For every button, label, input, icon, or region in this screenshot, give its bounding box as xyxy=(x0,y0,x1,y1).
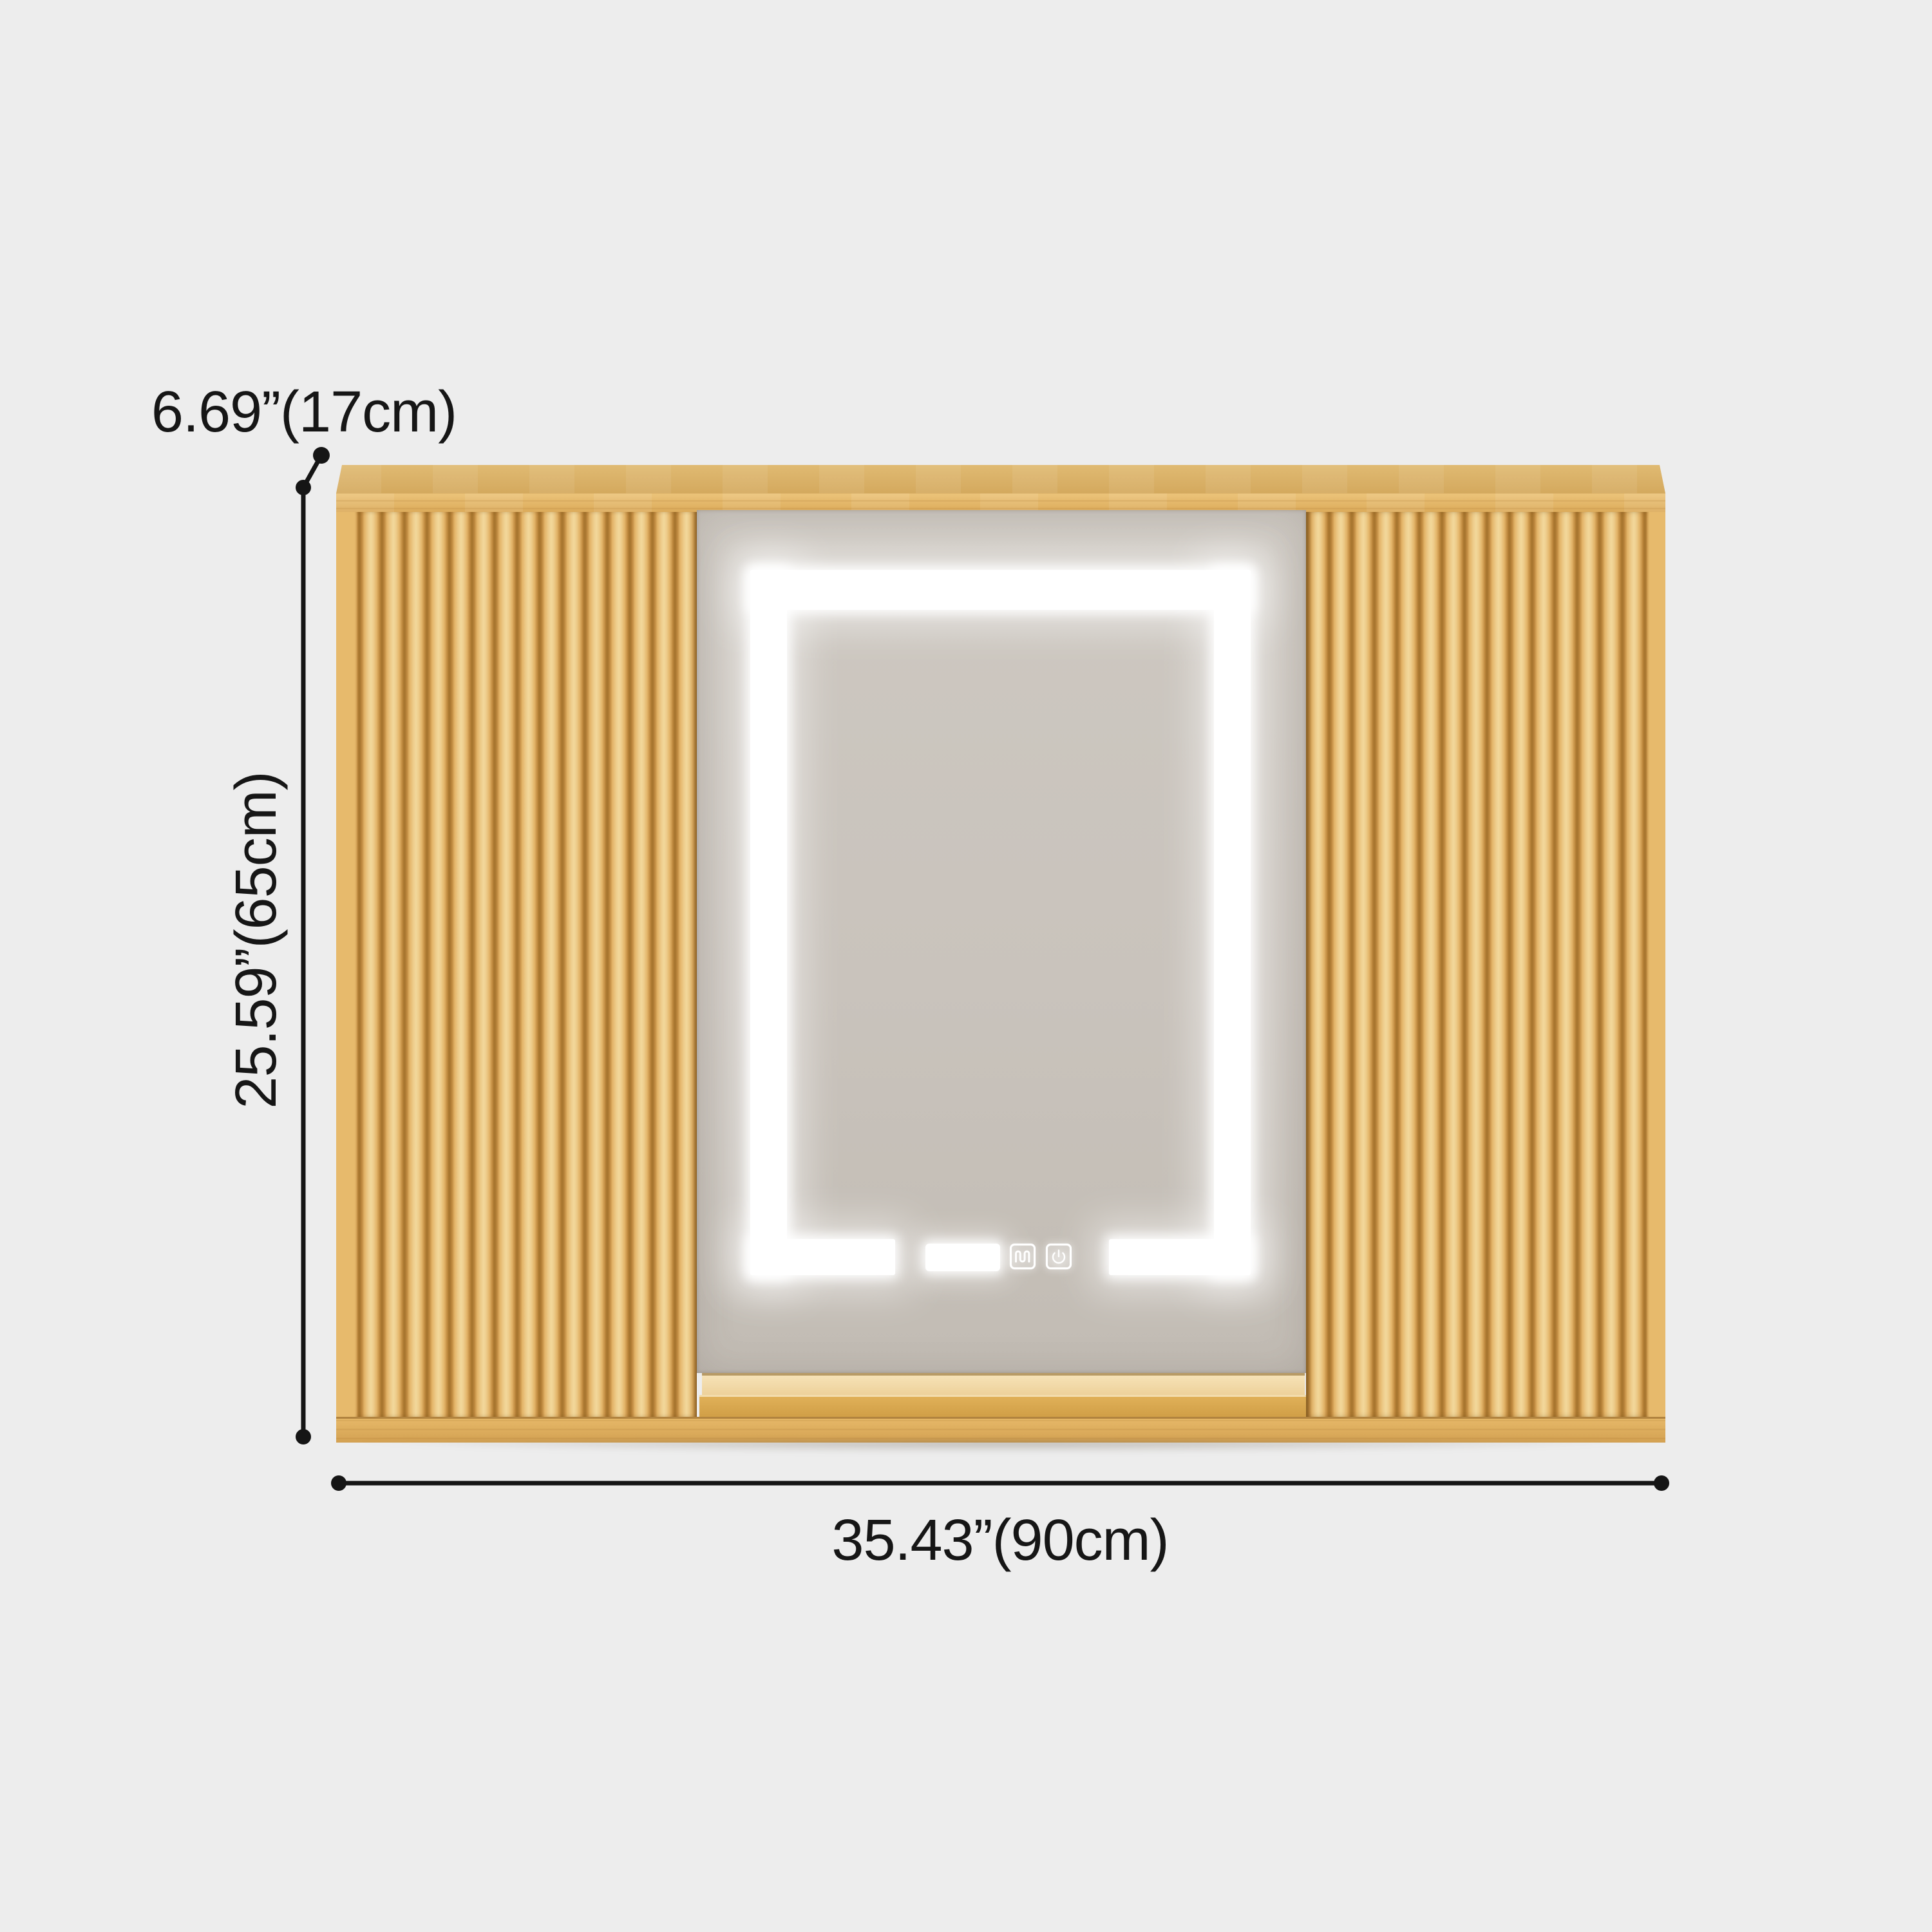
depth-leader-dot xyxy=(313,447,330,464)
defog-button xyxy=(1009,1243,1036,1270)
cabinet-drop-shadow xyxy=(343,1441,1659,1454)
width-line-right-dot xyxy=(1654,1475,1669,1491)
height-dimension-label: 25.59”(65cm) xyxy=(227,772,285,1108)
open-shelf-floor xyxy=(699,1395,1307,1419)
width-line-left-dot xyxy=(331,1475,346,1491)
led-strip-top xyxy=(750,570,1251,610)
depth-dimension-label: 6.69”(17cm) xyxy=(151,383,457,441)
left-fluted-door xyxy=(336,512,697,1417)
led-strip-bottom-left xyxy=(750,1239,895,1275)
width-dimension-label: 35.43”(90cm) xyxy=(831,1511,1168,1569)
led-display-window xyxy=(925,1244,1000,1271)
led-strip-right xyxy=(1214,570,1251,1275)
height-line-bottom-dot xyxy=(296,1429,311,1444)
led-strip-left xyxy=(750,570,787,1275)
open-shelf-back-panel xyxy=(702,1373,1305,1397)
depth-leader-line xyxy=(303,455,321,488)
cabinet-top-face xyxy=(336,465,1665,493)
height-line-top-dot xyxy=(296,480,311,495)
right-fluted-door xyxy=(1306,512,1665,1417)
product-dimension-diagram: 6.69”(17cm) 25.59”(65cm) 35.43”(90cm) xyxy=(0,0,1932,1932)
power-button xyxy=(1045,1243,1072,1270)
cabinet-front xyxy=(336,512,1665,1417)
cabinet-bottom-rail xyxy=(336,1417,1665,1443)
power-icon xyxy=(1045,1243,1072,1270)
defogger-icon xyxy=(1009,1243,1036,1270)
led-strip-bottom-right xyxy=(1109,1239,1251,1275)
led-mirror xyxy=(697,510,1306,1373)
